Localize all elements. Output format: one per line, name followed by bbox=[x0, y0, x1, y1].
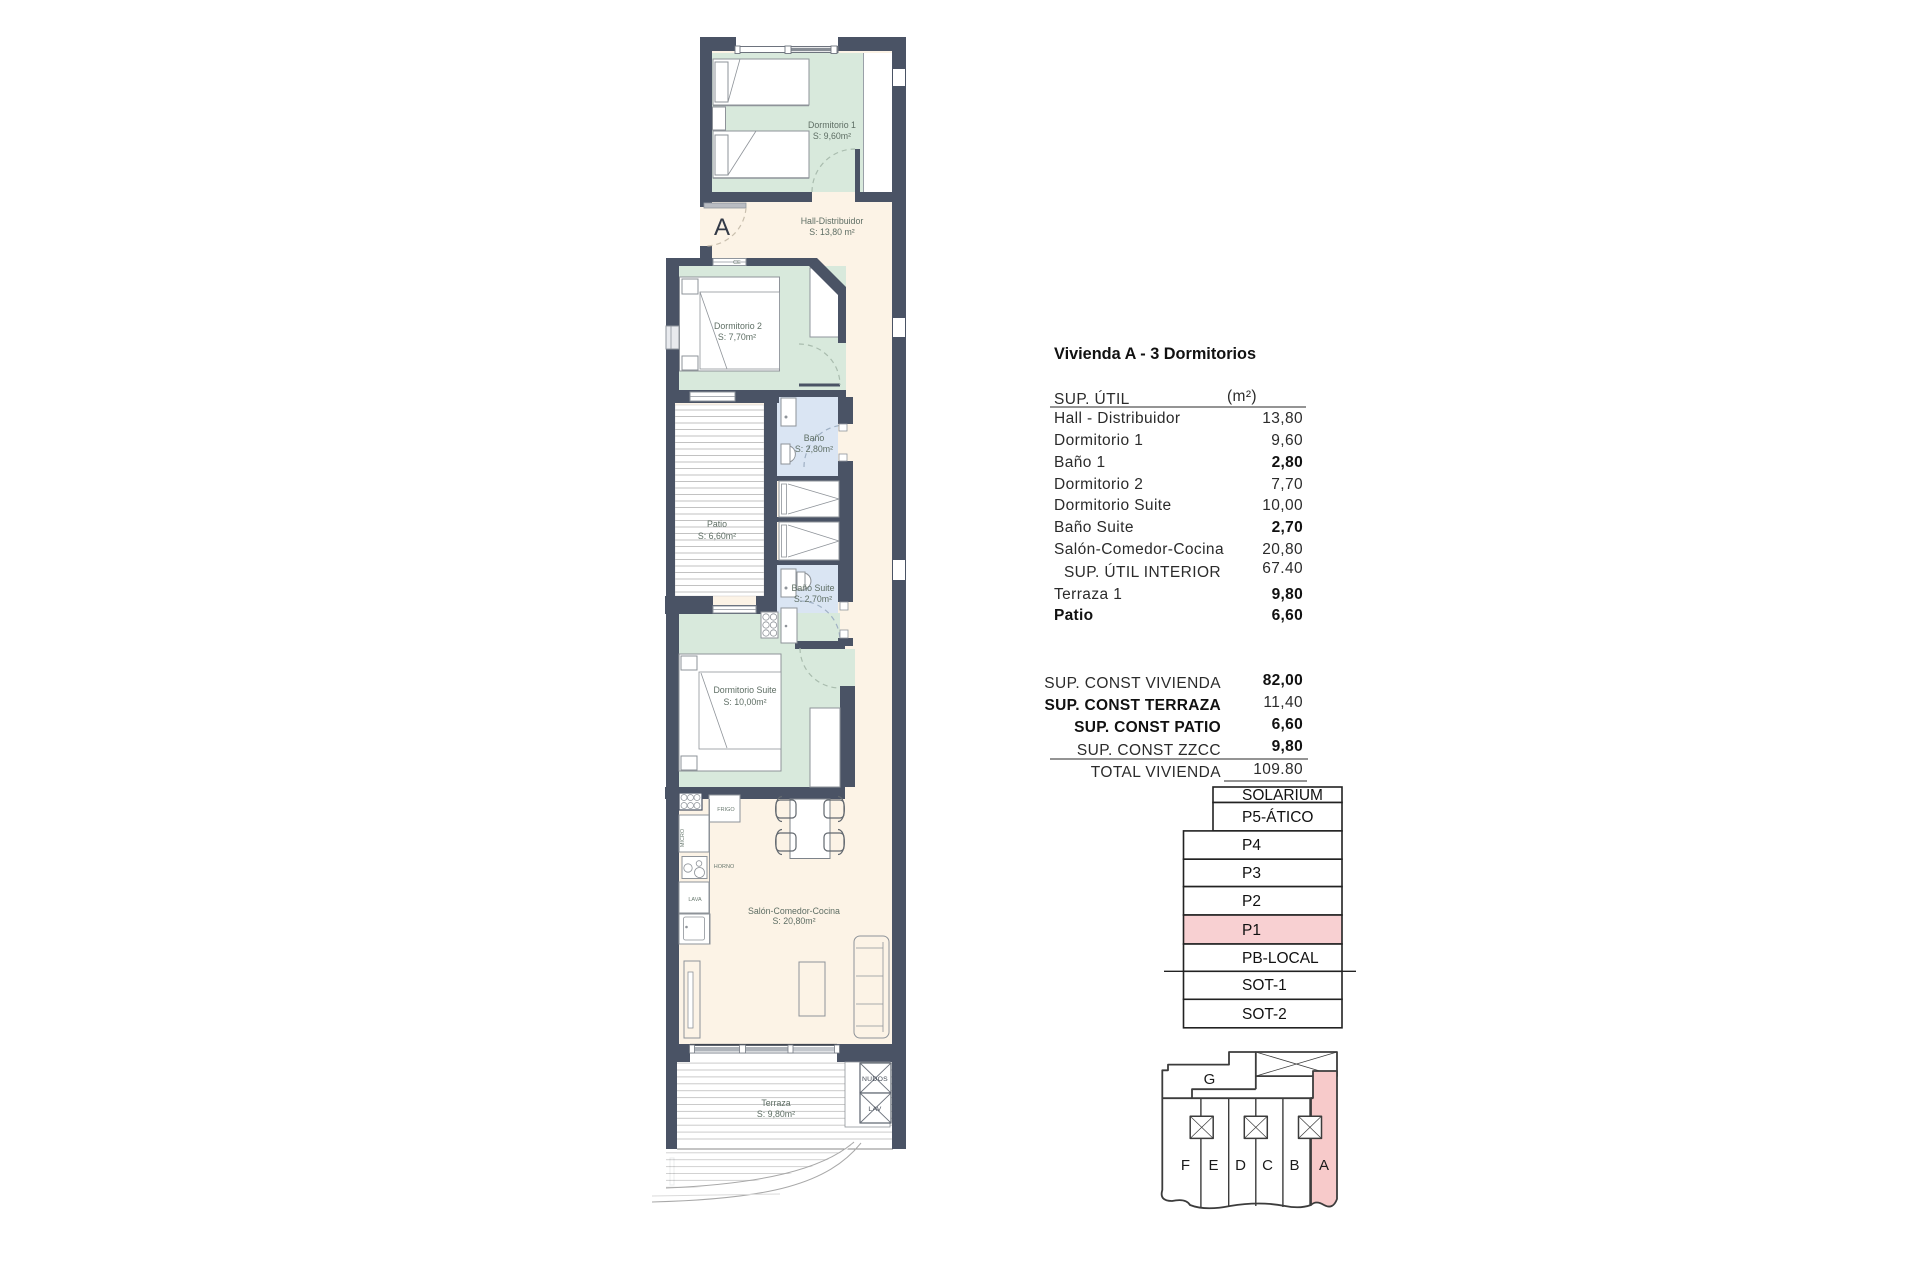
svg-text:P3: P3 bbox=[1242, 865, 1261, 882]
svg-text:F: F bbox=[1181, 1157, 1190, 1174]
svg-text:S: 9,80m²: S: 9,80m² bbox=[757, 1109, 795, 1119]
svg-text:Baño Suite: Baño Suite bbox=[791, 583, 834, 593]
svg-text:B: B bbox=[1289, 1157, 1299, 1174]
svg-text:Baño 1: Baño 1 bbox=[1054, 454, 1106, 471]
svg-text:SUP. CONST TERRAZA: SUP. CONST TERRAZA bbox=[1045, 697, 1222, 714]
svg-text:Hall - Distribuidor: Hall - Distribuidor bbox=[1054, 410, 1180, 427]
svg-text:NUDOS: NUDOS bbox=[862, 1076, 888, 1083]
svg-text:82,00: 82,00 bbox=[1263, 672, 1303, 689]
svg-text:S: 6,60m²: S: 6,60m² bbox=[698, 531, 736, 541]
svg-text:6,60: 6,60 bbox=[1272, 607, 1303, 624]
svg-text:2,70: 2,70 bbox=[1272, 519, 1303, 536]
svg-text:S: 13,80 m²: S: 13,80 m² bbox=[809, 227, 855, 237]
svg-text:S: 2.70m²: S: 2.70m² bbox=[794, 594, 832, 604]
svg-text:A: A bbox=[1319, 1157, 1329, 1174]
svg-text:13,80: 13,80 bbox=[1262, 410, 1303, 427]
svg-text:2,80: 2,80 bbox=[1272, 454, 1303, 471]
svg-text:Baño: Baño bbox=[804, 433, 825, 443]
svg-text:Patio: Patio bbox=[1054, 607, 1093, 624]
svg-text:MICRO: MICRO bbox=[680, 828, 686, 847]
svg-text:9,80: 9,80 bbox=[1272, 586, 1303, 603]
svg-text:(m²): (m²) bbox=[1227, 388, 1257, 405]
svg-text:9,80: 9,80 bbox=[1272, 738, 1303, 755]
svg-text:SUP. ÚTIL INTERIOR: SUP. ÚTIL INTERIOR bbox=[1064, 564, 1221, 581]
svg-text:PB-LOCAL: PB-LOCAL bbox=[1242, 950, 1319, 967]
svg-text:SOT-1: SOT-1 bbox=[1242, 977, 1287, 994]
svg-text:LAV: LAV bbox=[868, 1106, 881, 1113]
svg-text:P5-ÁTICO: P5-ÁTICO bbox=[1242, 809, 1313, 826]
svg-text:10,00: 10,00 bbox=[1262, 497, 1303, 514]
svg-text:Hall-Distribuidor: Hall-Distribuidor bbox=[801, 216, 864, 226]
svg-text:11,40: 11,40 bbox=[1263, 694, 1303, 711]
svg-text:Salón-Comedor-Cocina: Salón-Comedor-Cocina bbox=[748, 906, 840, 916]
svg-text:S: 2,80m²: S: 2,80m² bbox=[795, 444, 833, 454]
svg-text:Baño Suite: Baño Suite bbox=[1054, 519, 1134, 536]
svg-text:S: 9,60m²: S: 9,60m² bbox=[813, 131, 851, 141]
svg-text:Dormitorio 1: Dormitorio 1 bbox=[808, 120, 856, 130]
svg-text:S: 7,70m²: S: 7,70m² bbox=[718, 332, 756, 342]
svg-text:E: E bbox=[1208, 1157, 1218, 1174]
svg-text:P4: P4 bbox=[1242, 837, 1261, 854]
svg-text:Terraza: Terraza bbox=[761, 1098, 790, 1108]
svg-text:7,70: 7,70 bbox=[1271, 476, 1303, 493]
svg-text:SOLARIUM: SOLARIUM bbox=[1242, 787, 1323, 804]
svg-text:HORNO: HORNO bbox=[714, 864, 735, 870]
svg-text:LAVA: LAVA bbox=[688, 897, 702, 903]
svg-text:6,60: 6,60 bbox=[1272, 716, 1303, 733]
svg-text:FRIGO: FRIGO bbox=[717, 807, 735, 813]
svg-text:D: D bbox=[1235, 1157, 1246, 1174]
svg-text:SUP. CONST ZZCC: SUP. CONST ZZCC bbox=[1077, 742, 1221, 759]
svg-text:109.80: 109.80 bbox=[1253, 761, 1303, 778]
svg-text:Dormitorio Suite: Dormitorio Suite bbox=[713, 685, 776, 695]
svg-text:20,80: 20,80 bbox=[1262, 541, 1303, 558]
svg-text:A: A bbox=[714, 214, 730, 241]
svg-text:P2: P2 bbox=[1242, 893, 1261, 910]
svg-text:C: C bbox=[1262, 1157, 1273, 1174]
svg-text:Patio: Patio bbox=[707, 519, 727, 529]
svg-text:Terraza 1: Terraza 1 bbox=[1054, 586, 1122, 603]
svg-text:Dormitorio 2: Dormitorio 2 bbox=[1054, 476, 1143, 493]
svg-text:SOT-2: SOT-2 bbox=[1242, 1006, 1287, 1023]
svg-text:S: 10,00m²: S: 10,00m² bbox=[723, 697, 766, 707]
svg-text:9,60: 9,60 bbox=[1271, 432, 1303, 449]
svg-text:Vivienda A - 3 Dormitorios: Vivienda A - 3 Dormitorios bbox=[1054, 345, 1256, 363]
svg-text:TOTAL VIVIENDA: TOTAL VIVIENDA bbox=[1091, 764, 1221, 781]
svg-text:Dormitorio 2: Dormitorio 2 bbox=[714, 321, 762, 331]
svg-text:Dormitorio 1: Dormitorio 1 bbox=[1054, 432, 1143, 449]
svg-text:67.40: 67.40 bbox=[1262, 560, 1303, 577]
svg-text:G: G bbox=[1204, 1071, 1216, 1088]
svg-text:CE: CE bbox=[733, 260, 741, 266]
svg-text:SUP. CONST VIVIENDA: SUP. CONST VIVIENDA bbox=[1044, 675, 1221, 692]
svg-text:SUP. ÚTIL: SUP. ÚTIL bbox=[1054, 391, 1130, 408]
svg-text:S: 20,80m²: S: 20,80m² bbox=[772, 916, 815, 926]
svg-text:SUP. CONST PATIO: SUP. CONST PATIO bbox=[1074, 719, 1221, 736]
svg-text:Dormitorio Suite: Dormitorio Suite bbox=[1054, 497, 1172, 514]
svg-text:P1: P1 bbox=[1242, 922, 1261, 939]
svg-text:Salón-Comedor-Cocina: Salón-Comedor-Cocina bbox=[1054, 541, 1224, 558]
